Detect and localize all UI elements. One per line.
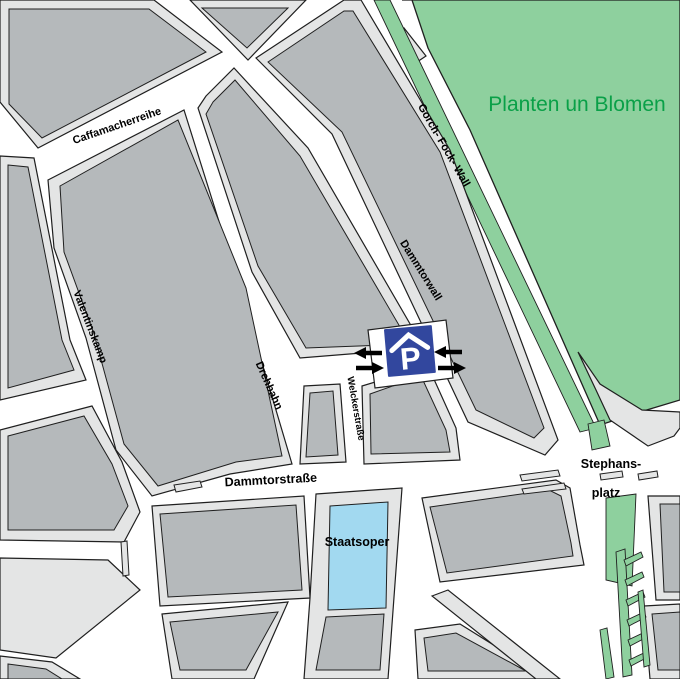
plaza (0, 558, 140, 658)
park-label: Planten un Blomen (488, 93, 665, 116)
lane-divider (600, 471, 623, 480)
lane-divider (638, 471, 658, 480)
parking-letter: P (399, 340, 423, 377)
staatsoper-building (328, 502, 388, 610)
green-median-end (588, 420, 610, 450)
stephansplatz-greens (600, 494, 650, 679)
building-label-staatsoper: Staatsoper (325, 535, 390, 549)
building (160, 505, 302, 597)
building (8, 416, 128, 530)
building (660, 504, 680, 592)
building (306, 391, 338, 457)
green-strip (600, 628, 614, 679)
place-label-stephansplatz-line1: Stephans- (581, 457, 641, 471)
place-label-stephansplatz-line2: platz (592, 486, 620, 500)
building (316, 614, 384, 670)
lane-divider (121, 541, 129, 576)
street-label-dammtorstrasse: Dammtorstraße (224, 471, 317, 490)
city-map: P Planten un Blomen Caffamacherreihe Val… (0, 0, 680, 679)
lane-divider (520, 470, 560, 481)
parking-garage-sign[interactable]: P (384, 325, 436, 378)
